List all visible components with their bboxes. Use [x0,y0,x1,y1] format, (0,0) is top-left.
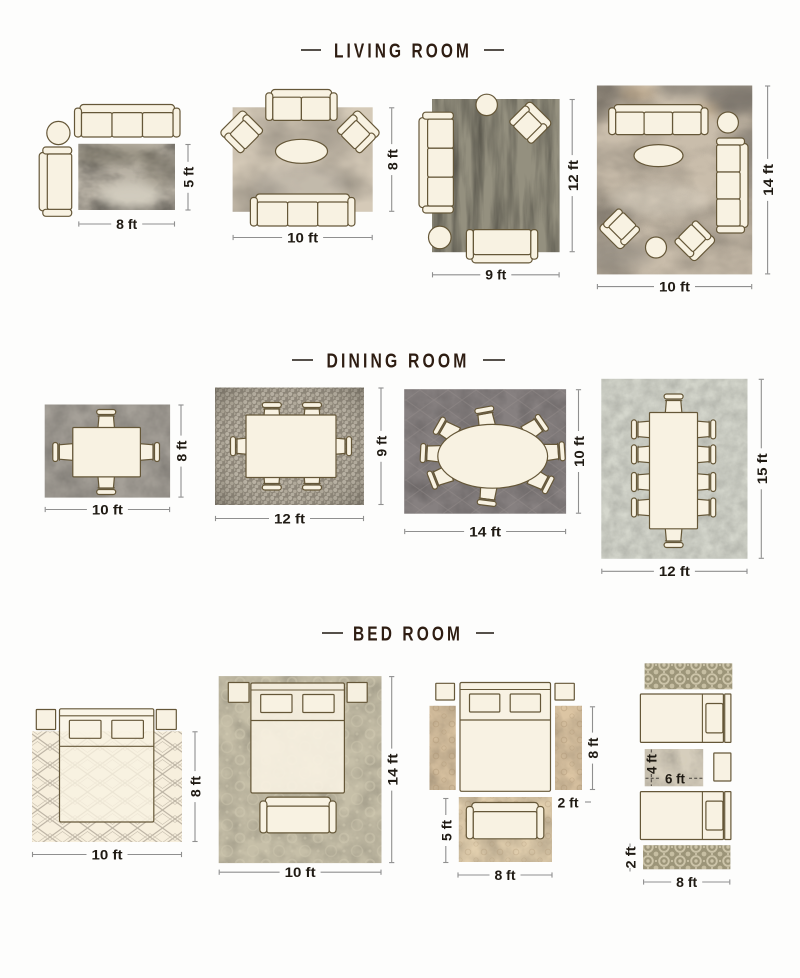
svg-text:8 ft: 8 ft [676,875,697,890]
svg-text:14 ft: 14 ft [469,524,501,539]
svg-text:10 ft: 10 ft [287,230,318,245]
svg-text:2 ft: 2 ft [624,846,639,868]
svg-text:8 ft: 8 ft [189,776,204,797]
svg-text:9 ft: 9 ft [375,435,390,456]
svg-text:LIVING ROOM: LIVING ROOM [334,40,472,62]
svg-text:5 ft: 5 ft [182,166,197,187]
svg-text:9 ft: 9 ft [485,268,506,283]
svg-text:8 ft: 8 ft [495,868,516,883]
svg-text:8 ft: 8 ft [586,737,601,758]
svg-text:8 ft: 8 ft [175,440,190,461]
svg-text:10 ft: 10 ft [92,502,123,517]
svg-text:8 ft: 8 ft [385,149,400,170]
svg-text:DINING ROOM: DINING ROOM [327,350,470,372]
svg-text:12 ft: 12 ft [274,511,305,526]
svg-text:10 ft: 10 ft [659,279,690,294]
svg-text:4 ft: 4 ft [644,754,660,774]
svg-text:14 ft: 14 ft [761,163,776,195]
svg-text:10 ft: 10 ft [92,847,123,862]
svg-text:6 ft: 6 ft [665,771,685,787]
svg-text:8 ft: 8 ft [116,217,137,232]
svg-text:10 ft: 10 ft [285,865,316,880]
svg-text:BED ROOM: BED ROOM [353,623,463,645]
svg-text:12 ft: 12 ft [566,160,581,191]
svg-text:14 ft: 14 ft [385,753,400,785]
svg-text:5 ft: 5 ft [439,820,454,841]
svg-text:15 ft: 15 ft [755,453,770,484]
svg-text:12 ft: 12 ft [659,564,690,579]
svg-text:10 ft: 10 ft [572,436,587,467]
svg-text:2 ft: 2 ft [558,796,579,811]
